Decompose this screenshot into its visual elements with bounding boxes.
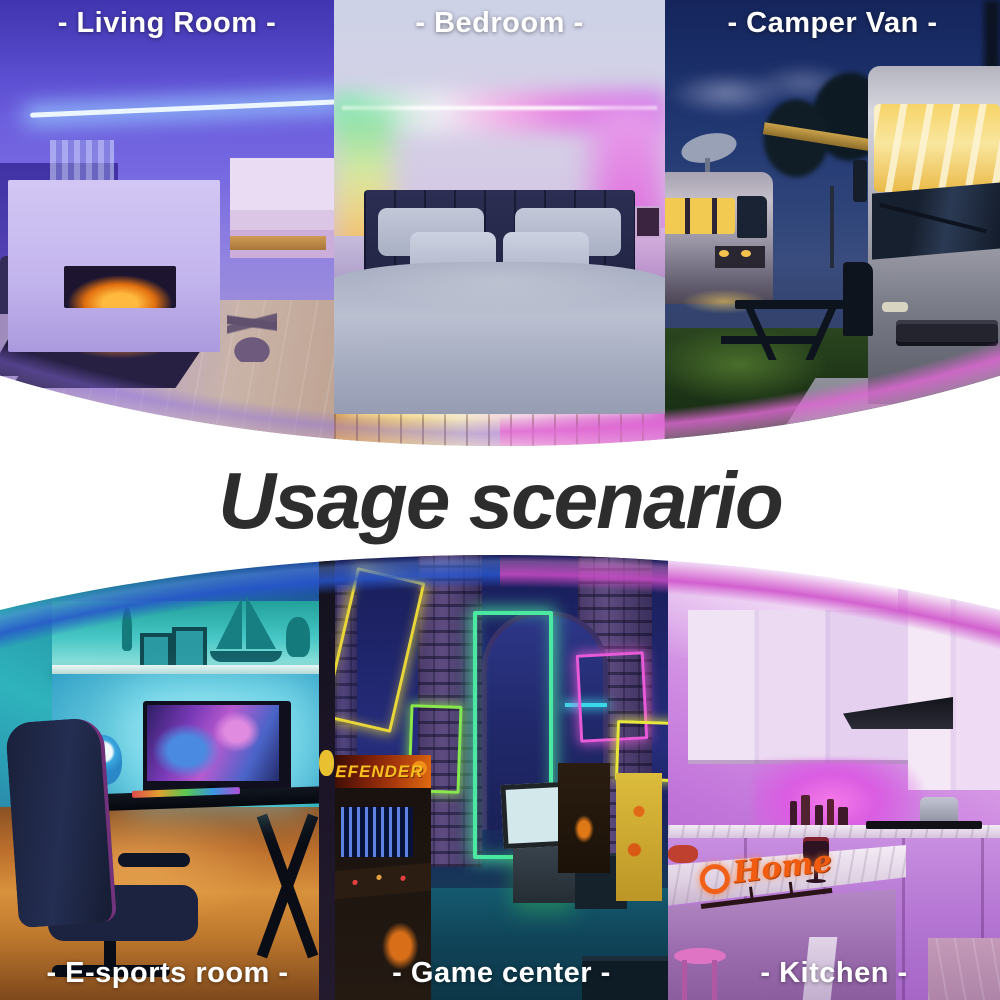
bottle	[838, 807, 848, 825]
shelf-board	[52, 665, 335, 674]
page-title: Usage scenario	[0, 446, 1000, 556]
game-center-label: - Game center -	[335, 957, 668, 990]
gaming-chair-armrest	[118, 853, 190, 867]
panel-kitchen: Home - Kitchen -	[668, 545, 1000, 1000]
arcade-cabinet-dark	[558, 763, 610, 873]
bottle	[815, 805, 823, 825]
usage-scenario-poster: - Living Room - - Bedroom -	[0, 0, 1000, 1000]
home-sign-ring	[698, 862, 731, 895]
astronaut-figurine	[286, 617, 310, 657]
rv-cab-window-lit	[874, 104, 1000, 192]
bottle	[801, 795, 810, 825]
recessed-spotlight	[910, 563, 936, 573]
rv-windshield	[737, 196, 767, 238]
bed-duvet	[334, 262, 665, 414]
red-plate	[668, 845, 698, 863]
rv-windows-lit	[665, 198, 735, 234]
rv-headlights	[719, 250, 729, 257]
bottle	[790, 801, 797, 825]
pikachu-figurine	[319, 750, 334, 776]
top-photo-row: - Living Room - - Bedroom -	[0, 0, 1000, 450]
picture-frame	[635, 206, 661, 238]
rv-grille	[896, 320, 998, 346]
fireplace	[64, 266, 176, 308]
driftwood-decor	[227, 284, 277, 362]
esports-room-label: - E-sports room -	[0, 957, 335, 990]
upper-cabinets	[688, 610, 910, 764]
panel-bedroom: - Bedroom -	[334, 0, 665, 450]
gaming-monitor	[143, 701, 291, 793]
camper-van-label: - Camper Van -	[665, 7, 1000, 40]
sailboat-hull	[210, 651, 282, 662]
picnic-bench	[721, 336, 817, 344]
arcade-control-panel	[335, 863, 431, 899]
panel-game-center: DEFENDER - Game center -	[335, 545, 668, 1000]
panel-camper-van: - Camper Van -	[665, 0, 1000, 450]
wood-counter	[230, 236, 326, 250]
rocket-figurine	[122, 607, 132, 651]
bottom-photo-row: - E-sports room - DEFENDER	[0, 545, 1000, 1000]
awning-pole	[830, 186, 834, 268]
camp-chair	[843, 262, 873, 336]
living-room-label: - Living Room -	[0, 7, 334, 40]
rv-large	[868, 66, 1000, 404]
arcade-marquee: DEFENDER	[335, 755, 431, 788]
monitor-screen	[147, 705, 279, 781]
arcade-cabinet-yellow	[616, 773, 662, 901]
kitchen-label: - Kitchen -	[668, 957, 1000, 990]
arcade-screen	[341, 807, 413, 857]
cooktop	[866, 821, 982, 829]
rv-headlight	[882, 302, 908, 312]
panel-esports-room: - E-sports room -	[0, 545, 335, 1000]
gaming-chair-back	[5, 717, 117, 928]
bottle	[827, 799, 834, 825]
side-mirror	[853, 160, 867, 202]
rv-small	[665, 172, 773, 304]
panel-living-room: - Living Room -	[0, 0, 334, 450]
bedroom-label: - Bedroom -	[334, 7, 665, 40]
arcade-marquee-text: DEFENDER	[335, 762, 424, 781]
